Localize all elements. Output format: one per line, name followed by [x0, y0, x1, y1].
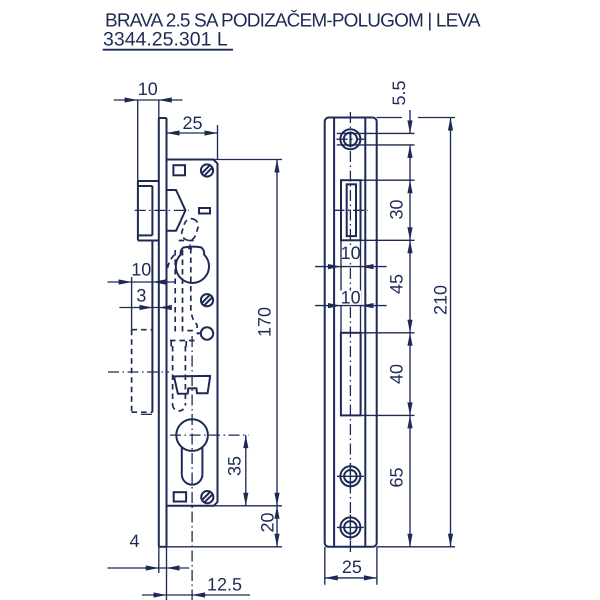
svg-text:5.5: 5.5	[389, 80, 409, 105]
svg-text:25: 25	[342, 557, 362, 577]
svg-text:25: 25	[182, 113, 202, 133]
svg-text:3: 3	[136, 286, 146, 306]
svg-text:10: 10	[341, 243, 361, 263]
svg-text:30: 30	[387, 199, 407, 219]
svg-text:12.5: 12.5	[207, 575, 242, 595]
svg-text:10: 10	[131, 260, 151, 280]
svg-text:3344.25.301 L: 3344.25.301 L	[103, 29, 228, 51]
svg-text:10: 10	[341, 288, 361, 308]
svg-text:210: 210	[431, 285, 451, 315]
svg-text:170: 170	[255, 307, 275, 337]
svg-text:40: 40	[387, 364, 407, 384]
svg-text:45: 45	[387, 274, 407, 294]
svg-text:20: 20	[258, 512, 278, 532]
svg-text:10: 10	[138, 79, 158, 99]
svg-text:35: 35	[225, 456, 245, 476]
svg-text:4: 4	[129, 531, 139, 551]
svg-text:65: 65	[387, 467, 407, 487]
